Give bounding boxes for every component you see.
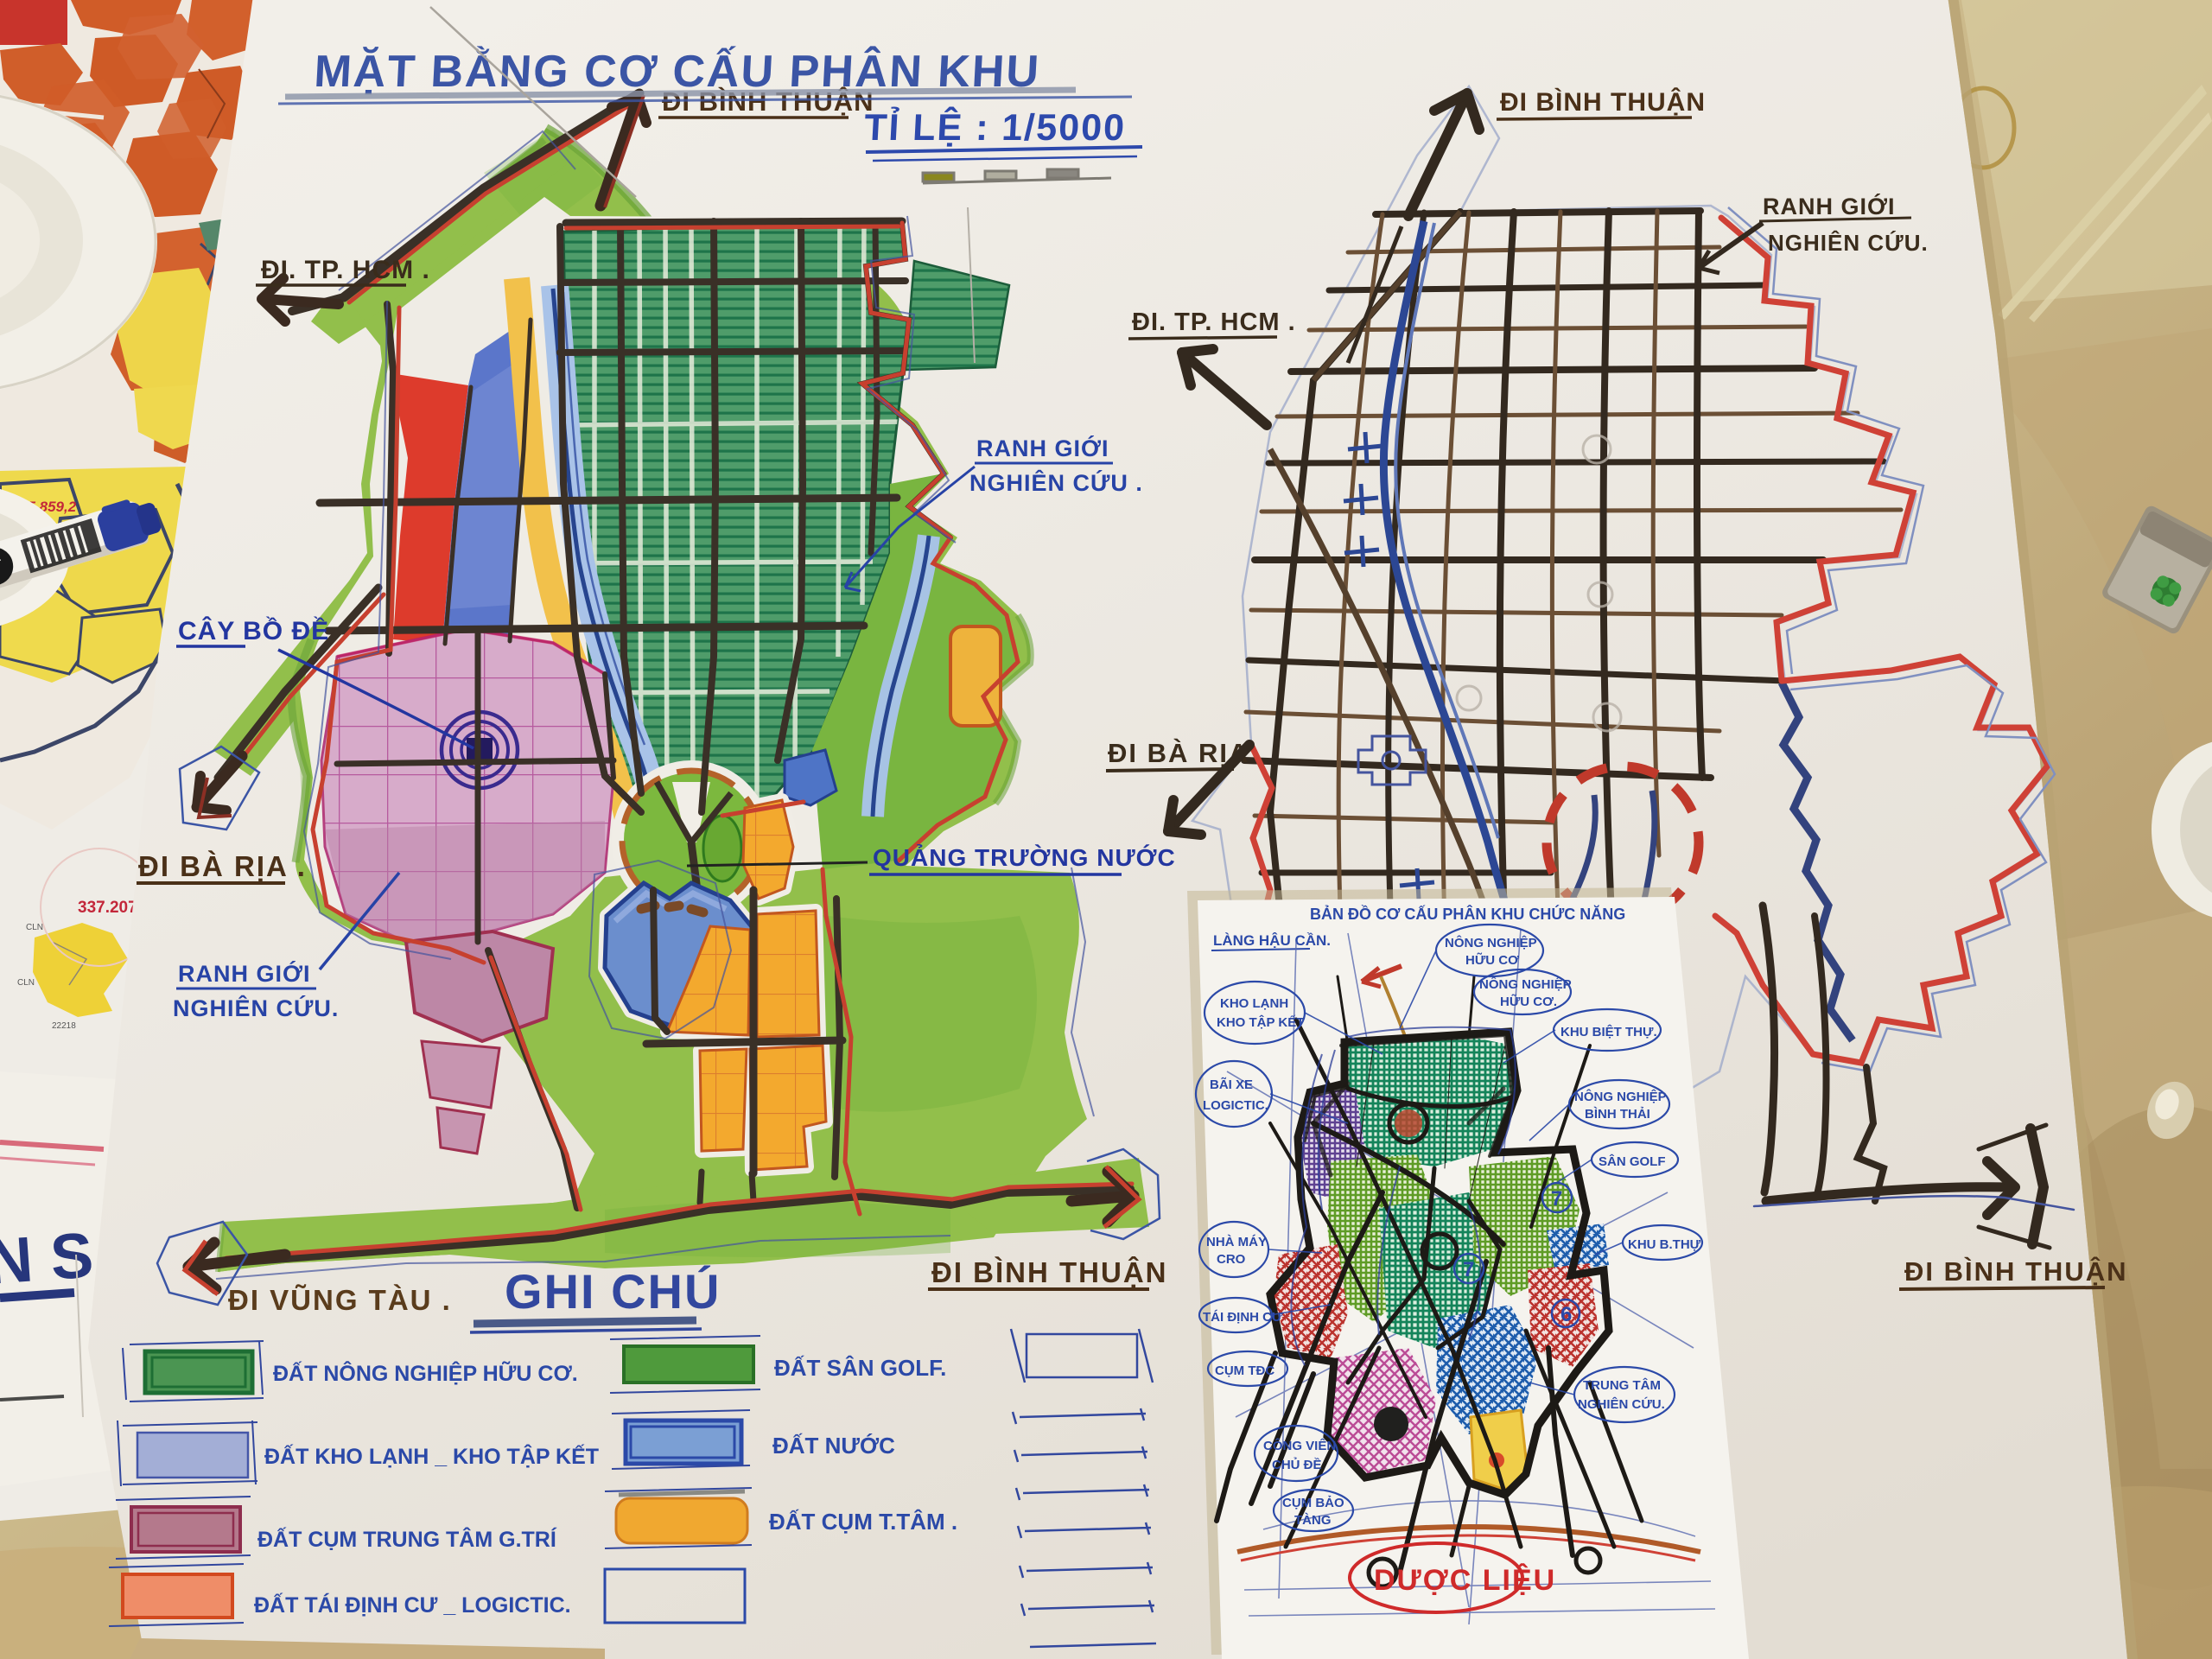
- svg-text:HỮU CƠ.: HỮU CƠ.: [1500, 994, 1557, 1009]
- svg-text:LOGICTIC.: LOGICTIC.: [1203, 1098, 1268, 1113]
- svg-text:CÔNG VIÊN: CÔNG VIÊN: [1263, 1438, 1336, 1453]
- svg-text:ĐI VŨNG TÀU .: ĐI VŨNG TÀU .: [228, 1284, 452, 1316]
- svg-text:7: 7: [1463, 1258, 1474, 1281]
- svg-text:ĐẤT CỤM T.TÂM .: ĐẤT CỤM T.TÂM .: [769, 1509, 957, 1535]
- svg-text:7: 7: [1551, 1187, 1562, 1211]
- svg-text:TÀNG: TÀNG: [1294, 1513, 1332, 1528]
- svg-text:CRO: CRO: [1217, 1252, 1246, 1267]
- svg-text:N S: N S: [0, 1219, 96, 1298]
- svg-text:TỈ LỆ : 1/5000: TỈ LỆ : 1/5000: [863, 106, 1127, 149]
- svg-text:KHU BIỆT THỰ.: KHU BIỆT THỰ.: [1560, 1024, 1657, 1039]
- svg-text:KHU B.THỰ: KHU B.THỰ: [1628, 1237, 1701, 1252]
- svg-text:CỤM TĐC: CỤM TĐC: [1215, 1363, 1274, 1378]
- svg-text:ĐI BÌNH THUẬN: ĐI BÌNH THUẬN: [1500, 87, 1706, 117]
- svg-text:NHÀ MÁY: NHÀ MÁY: [1206, 1235, 1267, 1249]
- svg-text:NÔNG NGHIỆP: NÔNG NGHIỆP: [1574, 1089, 1667, 1104]
- svg-text:6: 6: [1560, 1303, 1572, 1326]
- svg-text:TRUNG TÂM: TRUNG TÂM: [1583, 1377, 1661, 1393]
- svg-text:NÔNG NGHIỆP: NÔNG NGHIỆP: [1445, 935, 1537, 950]
- svg-text:BẢN ĐỒ CƠ CẤU PHÂN KHU CHỨC NĂ: BẢN ĐỒ CƠ CẤU PHÂN KHU CHỨC NĂNG: [1310, 905, 1625, 923]
- svg-text:RANH GIỚI: RANH GIỚI: [1763, 193, 1896, 219]
- svg-text:ĐẤT TÁI ĐỊNH CƯ _ LOGICTIC.: ĐẤT TÁI ĐỊNH CƯ _ LOGICTIC.: [254, 1592, 571, 1618]
- svg-text:ĐẤT KHO LẠNH _ KHO TẬP KẾT: ĐẤT KHO LẠNH _ KHO TẬP KẾT: [264, 1443, 599, 1469]
- svg-text:ĐI BÌNH THUẬN: ĐI BÌNH THUẬN: [931, 1256, 1167, 1288]
- svg-text:KHO LẠNH: KHO LẠNH: [1220, 996, 1288, 1011]
- svg-text:GHI CHÚ: GHI CHÚ: [505, 1264, 721, 1319]
- svg-text:NGHIÊN CỨU.: NGHIÊN CỨU.: [1578, 1396, 1665, 1412]
- svg-text:DƯỢC LIỆU: DƯỢC LIỆU: [1374, 1564, 1556, 1597]
- svg-text:NÔNG NGHIỆP: NÔNG NGHIỆP: [1479, 976, 1572, 992]
- svg-text:BÃI XE: BÃI XE: [1210, 1077, 1253, 1092]
- svg-text:ĐẤT SÂN GOLF.: ĐẤT SÂN GOLF.: [774, 1355, 946, 1381]
- svg-text:ĐI. TP. HCM .: ĐI. TP. HCM .: [261, 256, 430, 284]
- svg-text:CLN: CLN: [17, 978, 35, 988]
- svg-text:TÁI ĐỊNH CƯ: TÁI ĐỊNH CƯ: [1203, 1310, 1283, 1325]
- svg-text:ĐẤT NƯỚC: ĐẤT NƯỚC: [772, 1433, 895, 1459]
- svg-text:CÂY BỒ ĐỀ: CÂY BỒ ĐỀ: [178, 616, 329, 645]
- svg-text:BÌNH THẢI: BÌNH THẢI: [1585, 1107, 1650, 1122]
- svg-text:NGHIÊN CỨU.: NGHIÊN CỨU.: [1768, 230, 1929, 256]
- svg-text:KHO TẬP KẾT: KHO TẬP KẾT: [1217, 1014, 1304, 1030]
- svg-text:22218: 22218: [52, 1021, 76, 1031]
- svg-text:CỤM BẢO: CỤM BẢO: [1282, 1496, 1344, 1510]
- svg-text:HỮU CƠ: HỮU CƠ: [1465, 952, 1519, 968]
- svg-text:SÂN GOLF: SÂN GOLF: [1599, 1154, 1666, 1169]
- svg-text:NGHIÊN CỨU .: NGHIÊN CỨU .: [969, 469, 1143, 496]
- svg-text:ĐI. TP. HCM .: ĐI. TP. HCM .: [1132, 308, 1296, 336]
- svg-text:CLN: CLN: [26, 923, 43, 932]
- svg-text:NGHIÊN CỨU.: NGHIÊN CỨU.: [173, 995, 339, 1021]
- svg-text:QUẢNG TRƯỜNG NƯỚC: QUẢNG TRƯỜNG NƯỚC: [873, 843, 1176, 871]
- svg-text:ĐI BÌNH THUẬN: ĐI BÌNH THUẬN: [1904, 1255, 2128, 1287]
- svg-text:ĐI BÀ RỊA .: ĐI BÀ RỊA .: [138, 850, 307, 882]
- svg-text:RANH GIỚI: RANH GIỚI: [178, 960, 311, 987]
- svg-text:RANH GIỚI: RANH GIỚI: [976, 435, 1109, 461]
- svg-text:CHỦ ĐỀ: CHỦ ĐỀ: [1272, 1457, 1322, 1472]
- svg-text:ĐẤT CỤM TRUNG TÂM G.TRÍ: ĐẤT CỤM TRUNG TÂM G.TRÍ: [257, 1526, 557, 1552]
- svg-text:ĐẤT NÔNG NGHIỆP HỮU CƠ.: ĐẤT NÔNG NGHIỆP HỮU CƠ.: [273, 1360, 578, 1386]
- svg-text:LÀNG HẬU CẦN.: LÀNG HẬU CẦN.: [1213, 932, 1331, 949]
